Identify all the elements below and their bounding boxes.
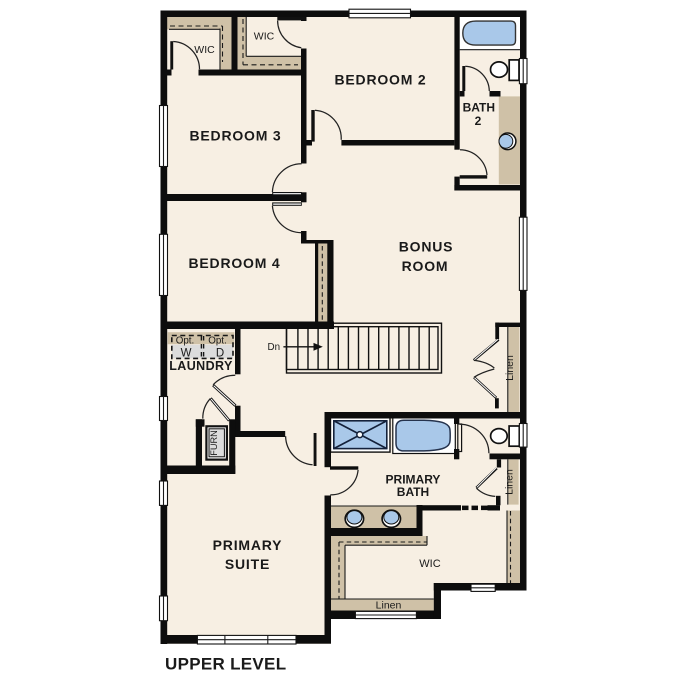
svg-text:LAUNDRY: LAUNDRY xyxy=(169,359,233,373)
svg-text:Dn: Dn xyxy=(268,342,281,353)
svg-text:Linen: Linen xyxy=(504,469,516,495)
svg-text:BONUS: BONUS xyxy=(399,239,454,255)
svg-text:SUITE: SUITE xyxy=(225,556,270,572)
svg-text:W: W xyxy=(181,347,192,359)
svg-text:BEDROOM 2: BEDROOM 2 xyxy=(335,71,427,87)
svg-text:WIC: WIC xyxy=(254,31,275,43)
svg-text:BEDROOM 4: BEDROOM 4 xyxy=(189,255,281,271)
svg-text:UPPER LEVEL: UPPER LEVEL xyxy=(165,655,286,674)
svg-text:BATH: BATH xyxy=(463,100,495,114)
svg-text:Opt.: Opt. xyxy=(208,336,227,347)
svg-text:ROOM: ROOM xyxy=(402,258,449,274)
svg-text:BEDROOM 3: BEDROOM 3 xyxy=(190,127,282,143)
svg-text:Opt.: Opt. xyxy=(176,336,195,347)
svg-text:2: 2 xyxy=(475,114,482,128)
svg-text:Linen: Linen xyxy=(504,355,516,381)
svg-text:WIC: WIC xyxy=(419,558,440,570)
svg-text:WIC: WIC xyxy=(194,44,215,56)
svg-text:Linen: Linen xyxy=(376,599,402,611)
svg-text:PRIMARY: PRIMARY xyxy=(213,537,283,553)
svg-text:D: D xyxy=(216,347,224,359)
svg-text:BATH: BATH xyxy=(397,485,429,499)
svg-text:FURN: FURN xyxy=(209,430,219,456)
